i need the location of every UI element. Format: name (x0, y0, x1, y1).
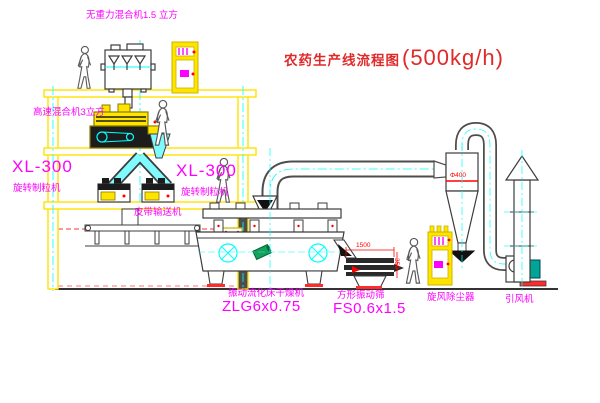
control-cabinet-ground (428, 226, 452, 285)
dimension-cyclone-diameter: Φ400 (450, 173, 466, 180)
label-belt-conveyor: 皮带输送机 (134, 208, 182, 218)
title-capacity: (500kg/h) (402, 45, 504, 71)
diagram-title: 农药生产线流程图 (500kg/h) (284, 45, 504, 71)
cyclone-separator (446, 129, 512, 268)
label-high-speed-mixer: 高速混合机3立方 (33, 108, 105, 118)
title-text: 农药生产线流程图 (284, 49, 400, 69)
label-granulator-right-model: XL-300 (176, 162, 237, 179)
person-ground (406, 238, 420, 283)
granulator-left (98, 178, 130, 202)
label-granulator-left-model: XL-300 (12, 158, 73, 175)
flow-diagram-canvas: 农药生产线流程图 (500kg/h) 无重力混合机1.5 立方 高速混合机3立方… (0, 0, 600, 403)
dimension-screen-length: 1500 (356, 243, 370, 250)
label-dryer-model: ZLG6x0.75 (222, 299, 301, 314)
label-granulator-left-name: 旋转制粒机 (13, 184, 61, 194)
label-screen-model: FS0.6x1.5 (333, 301, 406, 316)
gravity-free-mixer (101, 44, 155, 108)
dimension-screen-height: 350 (393, 258, 400, 269)
label-cyclone: 旋风除尘器 (427, 293, 475, 303)
control-cabinet-top (172, 42, 198, 93)
label-granulator-right-name: 旋转制粒机 (181, 188, 229, 198)
label-fan: 引风机 (505, 295, 534, 305)
person-roof (78, 46, 91, 88)
label-gravity-free-mixer: 无重力混合机1.5 立方 (86, 11, 178, 21)
